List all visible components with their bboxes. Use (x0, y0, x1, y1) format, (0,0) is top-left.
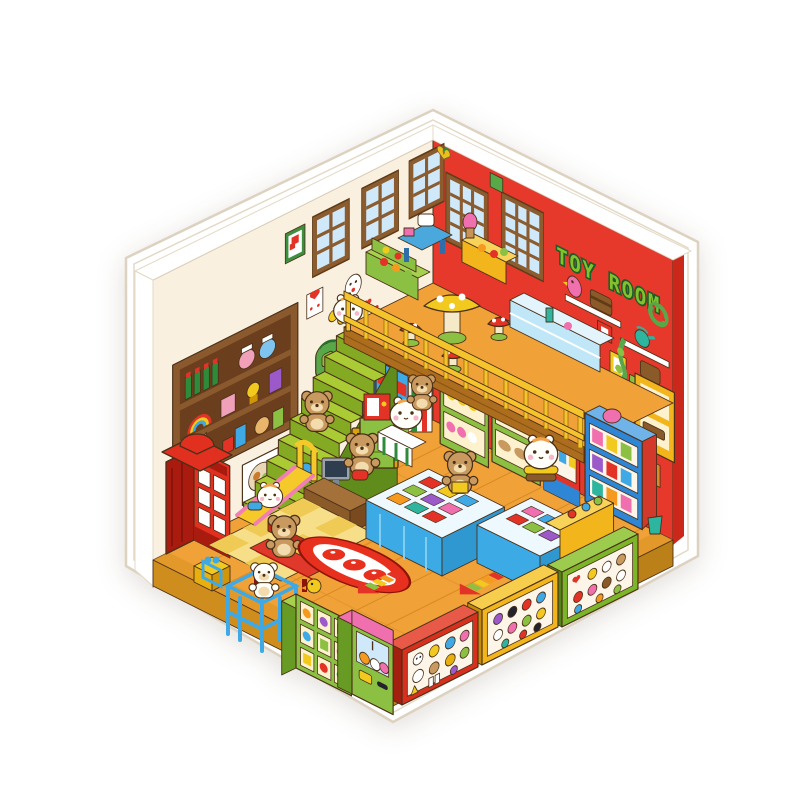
left-wall-outer-band (135, 271, 153, 586)
hamster-toy (248, 502, 262, 510)
plush-on-rack (603, 409, 621, 423)
picture-book (452, 482, 468, 493)
toy-room-sticker-illustration: TOY ROOM (0, 0, 800, 800)
burger-hamster (524, 435, 558, 481)
teal-bucket (648, 516, 662, 534)
toy-phone (352, 470, 368, 480)
